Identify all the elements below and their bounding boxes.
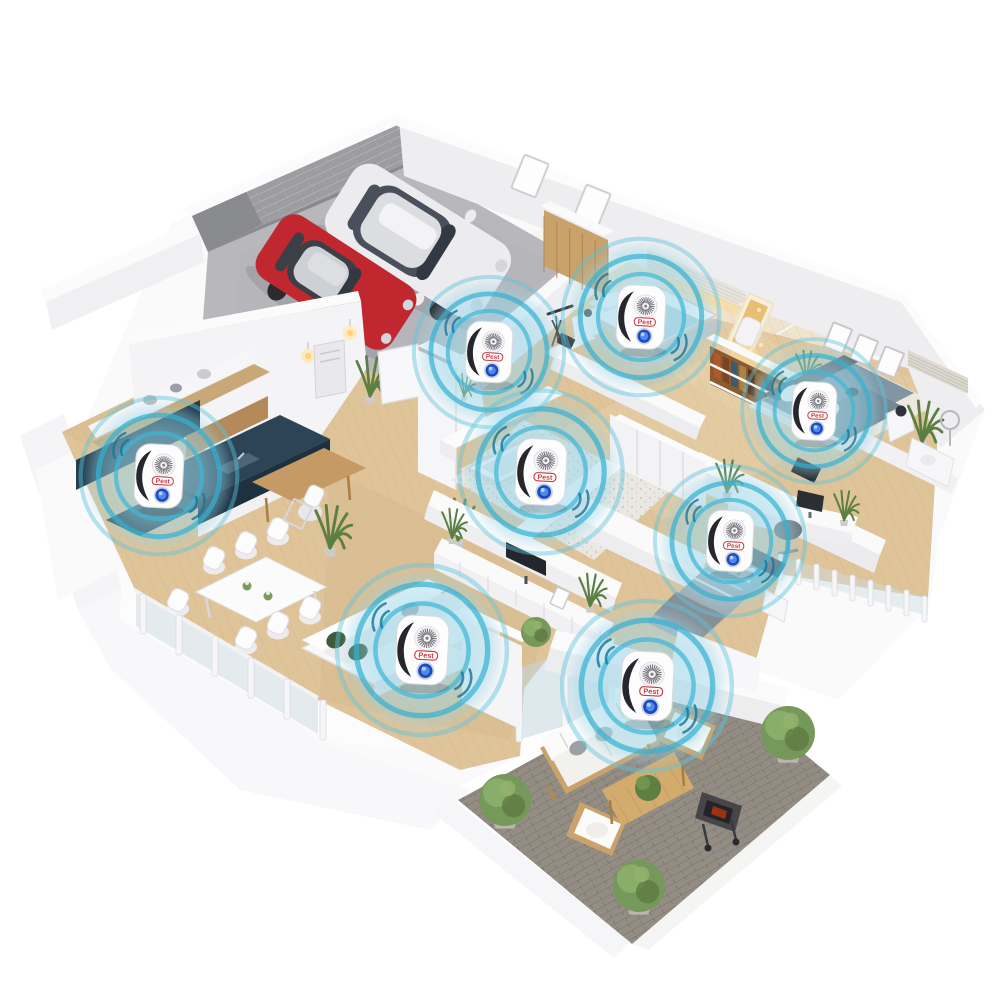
svg-text:Pest: Pest [727, 543, 742, 551]
svg-text:Pest: Pest [811, 412, 824, 420]
svg-text:Pest: Pest [418, 650, 434, 660]
svg-text:Pest: Pest [156, 478, 171, 486]
svg-text:Pest: Pest [643, 686, 659, 696]
svg-text:Pest: Pest [638, 319, 653, 327]
svg-text:Pest: Pest [486, 354, 501, 362]
svg-text:Pest: Pest [537, 474, 553, 482]
